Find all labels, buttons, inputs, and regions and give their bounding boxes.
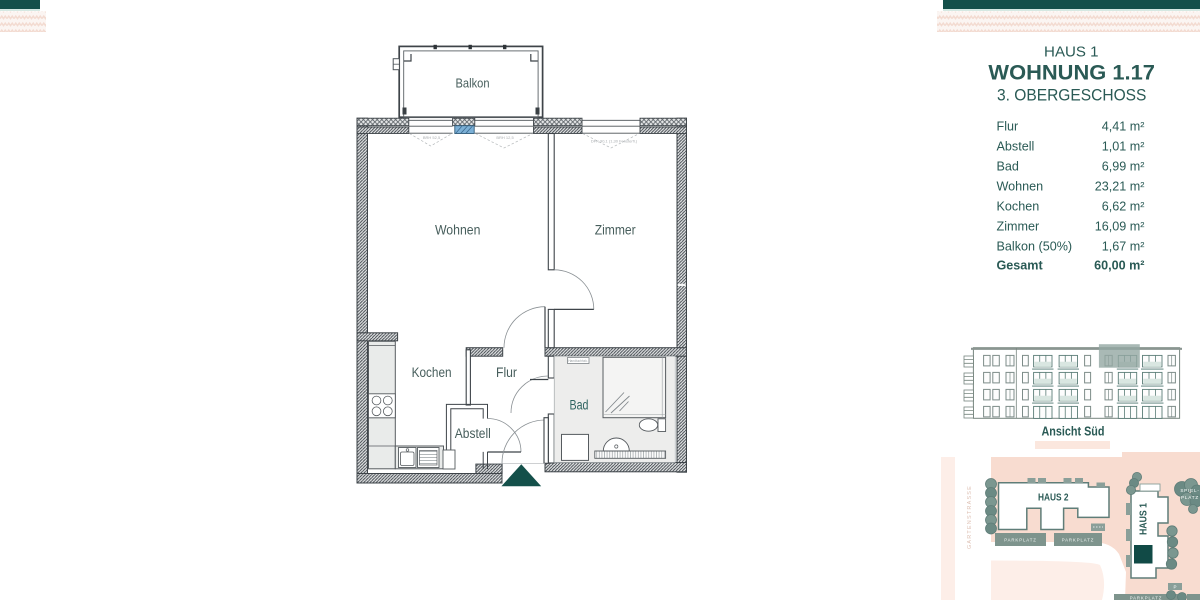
- svg-text:SPIEL-: SPIEL-: [1180, 488, 1199, 493]
- svg-text:PARKPLATZ: PARKPLATZ: [1130, 596, 1163, 600]
- svg-text:1,01 m²: 1,01 m²: [1102, 140, 1145, 154]
- svg-text:HAUS 1: HAUS 1: [1139, 503, 1150, 535]
- svg-text:PARKPLATZ: PARKPLATZ: [1062, 537, 1095, 542]
- svg-text:23,21 m²: 23,21 m²: [1095, 180, 1145, 194]
- svg-text:HAUS 1: HAUS 1: [1044, 45, 1099, 61]
- svg-text:PARKPLATZ: PARKPLATZ: [1004, 537, 1037, 542]
- svg-text:Bad: Bad: [570, 396, 589, 412]
- svg-text:Bad: Bad: [997, 160, 1019, 174]
- svg-text:Abstell: Abstell: [997, 140, 1035, 154]
- svg-text:Balkon: Balkon: [456, 75, 490, 90]
- svg-text:HAUS 2: HAUS 2: [1038, 493, 1069, 504]
- svg-text:BRH 52,5: BRH 52,5: [423, 135, 441, 140]
- svg-text:Ansicht Süd: Ansicht Süd: [1042, 424, 1105, 439]
- svg-text:3. OBERGESCHOSS: 3. OBERGESCHOSS: [997, 87, 1147, 105]
- svg-text:Wohnen: Wohnen: [997, 180, 1044, 194]
- svg-text:Kochen: Kochen: [412, 364, 452, 380]
- svg-text:WOHNUNG 1.17: WOHNUNG 1.17: [988, 61, 1155, 85]
- svg-text:Gesamt: Gesamt: [997, 259, 1044, 273]
- svg-text:Zimmer: Zimmer: [997, 220, 1040, 234]
- svg-text:Abstell: Abstell: [455, 426, 491, 441]
- svg-text:DFK 90,1 (1,30 Fensterfl.): DFK 90,1 (1,30 Fensterfl.): [591, 139, 638, 144]
- svg-text:1,67 m²: 1,67 m²: [1102, 240, 1145, 254]
- svg-text:Zimmer: Zimmer: [595, 222, 636, 238]
- svg-text:Flur: Flur: [496, 364, 517, 380]
- svg-text:16,09 m²: 16,09 m²: [1095, 220, 1145, 234]
- svg-text:Kochen: Kochen: [997, 200, 1040, 214]
- svg-text:GARTENSTRASSE: GARTENSTRASSE: [967, 485, 973, 549]
- svg-text:6,62 m²: 6,62 m²: [1102, 200, 1145, 214]
- svg-text:PLATZ: PLATZ: [1181, 495, 1199, 500]
- svg-text:Wohnen: Wohnen: [435, 222, 481, 238]
- svg-text:Handtuchhzk.: Handtuchhzk.: [568, 359, 588, 363]
- svg-text:6,99 m²: 6,99 m²: [1102, 160, 1145, 174]
- svg-text:4,41 m²: 4,41 m²: [1102, 120, 1145, 134]
- svg-text:Flur: Flur: [997, 120, 1019, 134]
- svg-text:60,00 m²: 60,00 m²: [1094, 259, 1144, 273]
- svg-text:Balkon (50%): Balkon (50%): [997, 240, 1073, 254]
- svg-text:P: P: [1173, 585, 1176, 590]
- svg-text:BRH 12,5: BRH 12,5: [496, 135, 514, 140]
